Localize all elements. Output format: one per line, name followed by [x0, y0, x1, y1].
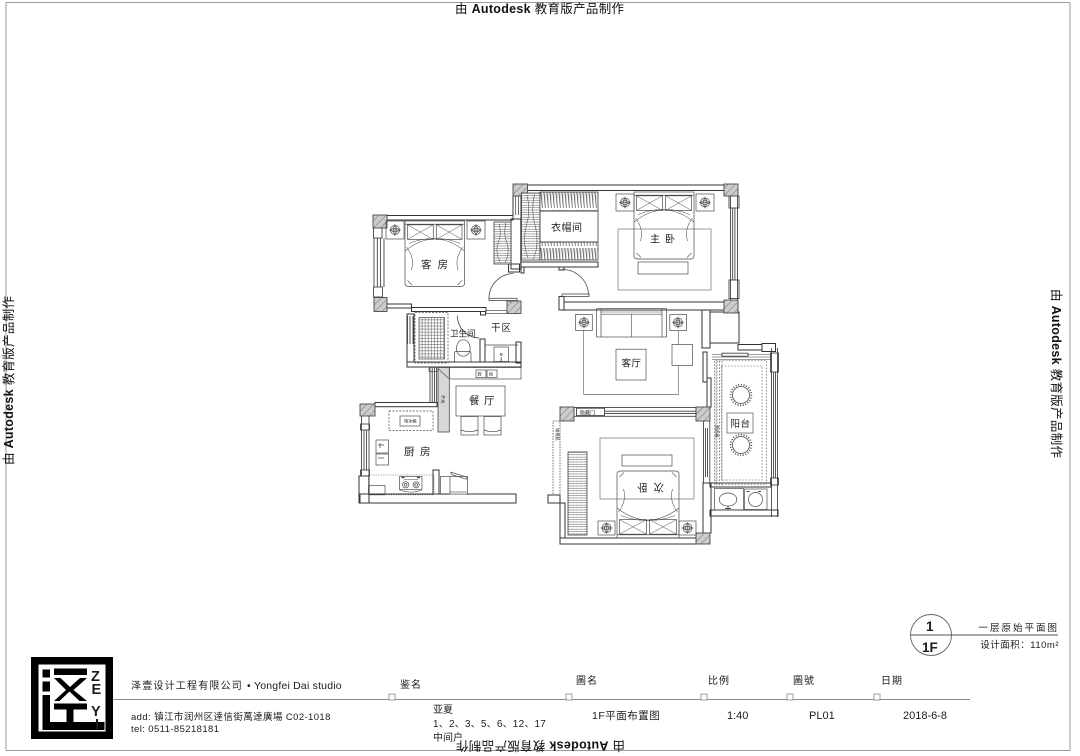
svg-text:主卧: 主卧 [650, 233, 680, 246]
svg-text:电视机: 电视机 [554, 428, 561, 441]
svg-text:衣帽间: 衣帽间 [551, 221, 583, 234]
svg-text:比例: 比例 [708, 674, 730, 687]
svg-text:由 Autodesk 教育版产品制作: 由 Autodesk 教育版产品制作 [1049, 289, 1064, 459]
svg-text:餐厅: 餐厅 [469, 394, 499, 407]
svg-text:设计面积：110m²: 设计面积：110m² [980, 639, 1059, 651]
svg-text:1、2、3、5、6、12、17: 1、2、3、5、6、12、17 [433, 719, 546, 730]
svg-text:干区: 干区 [491, 323, 512, 334]
svg-text:1:40: 1:40 [727, 710, 748, 722]
svg-text:柜: 柜 [489, 371, 493, 378]
svg-text:阳台: 阳台 [731, 418, 751, 430]
svg-text:客房: 客房 [421, 258, 454, 271]
svg-text:开关: 开关 [440, 395, 447, 403]
svg-text:I: I [95, 717, 99, 733]
svg-text:客厅: 客厅 [622, 358, 642, 370]
svg-text:由 Autodesk 教育版产品制作: 由 Autodesk 教育版产品制作 [1, 295, 16, 465]
svg-text:亚夏: 亚夏 [433, 704, 453, 716]
svg-text:鉴名: 鉴名 [400, 678, 422, 691]
svg-text:tel: 0511-85218181: tel: 0511-85218181 [131, 724, 219, 735]
svg-text:卫生间: 卫生间 [450, 329, 476, 339]
svg-text:圖名: 圖名 [576, 674, 598, 687]
svg-text:add: 镇江市润州区逹信街萬達廣場 C02-1018: add: 镇江市润州区逹信街萬達廣場 C02-1018 [131, 711, 331, 723]
svg-text:1F平面布置图: 1F平面布置图 [592, 710, 660, 722]
svg-text:洗衣机: 洗衣机 [714, 425, 721, 438]
svg-text:隐藏门: 隐藏门 [580, 409, 595, 416]
svg-text:2018-6-8: 2018-6-8 [903, 710, 947, 722]
svg-text:PL01: PL01 [809, 710, 835, 722]
svg-text:圖號: 圖號 [793, 674, 815, 687]
svg-text:中间户: 中间户 [433, 731, 463, 744]
svg-text:由 Autodesk 教育版产品制作: 由 Autodesk 教育版产品制作 [455, 739, 625, 754]
svg-text:1: 1 [926, 619, 934, 634]
svg-text:泽壹设计工程有限公司 • Yongfei Dai studi: 泽壹设计工程有限公司 • Yongfei Dai studio [131, 679, 342, 692]
svg-text:次卧: 次卧 [631, 481, 664, 494]
svg-text:日期: 日期 [881, 675, 903, 687]
svg-text:电冰箱: 电冰箱 [404, 418, 417, 425]
svg-text:一层原始平面图: 一层原始平面图 [978, 622, 1059, 634]
svg-text:1F: 1F [922, 640, 938, 655]
svg-text:E: E [92, 682, 102, 698]
svg-text:厨房: 厨房 [404, 445, 436, 458]
svg-text:由 Autodesk 教育版产品制作: 由 Autodesk 教育版产品制作 [455, 1, 625, 16]
